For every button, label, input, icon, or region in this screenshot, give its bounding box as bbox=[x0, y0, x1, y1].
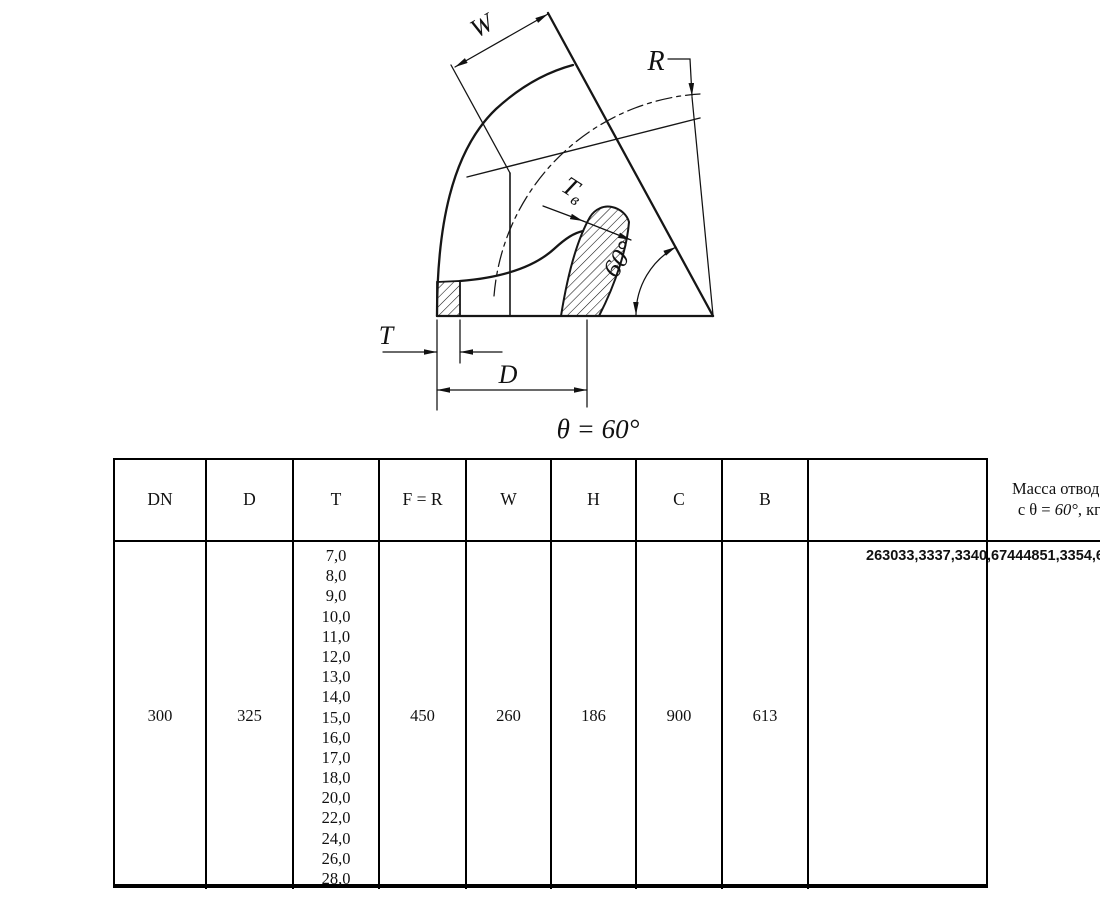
col-header-fr: F = R bbox=[380, 460, 467, 542]
value-h: 186 bbox=[552, 542, 637, 889]
list-item: 18,0 bbox=[322, 768, 351, 788]
list-item: 48 bbox=[1023, 546, 1039, 566]
label-w: W bbox=[465, 7, 500, 44]
list-item: 10,0 bbox=[322, 607, 351, 627]
list-item: 13,0 bbox=[322, 667, 351, 687]
list-item: 11,0 bbox=[322, 627, 350, 647]
label-t: T bbox=[379, 321, 395, 350]
list-item: 22,0 bbox=[322, 808, 351, 828]
list-item: 28,0 bbox=[322, 869, 351, 889]
list-item: 44 bbox=[1007, 546, 1023, 566]
col-header-t: T bbox=[294, 460, 380, 542]
outer-arc bbox=[437, 65, 573, 316]
mass-header-line2: с θ = 60°, кг bbox=[1018, 500, 1100, 521]
col-header-h: H bbox=[552, 460, 637, 542]
col-header-w: W bbox=[467, 460, 552, 542]
wall-section-left bbox=[437, 281, 460, 316]
list-item: 54,67 bbox=[1076, 546, 1100, 566]
catalog-page: W R Тв 60° T D θ = 60° DN D T F = R W H … bbox=[0, 0, 1100, 900]
list-item: 33,33 bbox=[898, 546, 934, 566]
mass-header-line1: Масса отвода bbox=[1012, 479, 1100, 500]
value-w: 260 bbox=[467, 542, 552, 889]
list-item: 26 bbox=[866, 546, 882, 566]
value-mass-list: 263033,3337,3340,67444851,3354,675861,33… bbox=[809, 542, 1100, 889]
value-t-list: 7,08,09,010,011,012,013,014,015,016,017,… bbox=[294, 542, 380, 889]
bore-curve bbox=[460, 231, 583, 281]
col-header-d: D bbox=[207, 460, 294, 542]
list-item: 17,0 bbox=[322, 748, 351, 768]
label-r: R bbox=[646, 46, 664, 77]
col-header-b: B bbox=[723, 460, 809, 542]
tv-leader-1 bbox=[543, 206, 583, 221]
col-header-c: C bbox=[637, 460, 723, 542]
list-item: 15,0 bbox=[322, 708, 351, 728]
r-leader bbox=[668, 59, 692, 96]
col-header-dn: DN bbox=[115, 460, 207, 542]
list-item: 9,0 bbox=[326, 586, 347, 606]
value-b: 613 bbox=[723, 542, 809, 889]
list-item: 24,0 bbox=[322, 829, 351, 849]
value-c: 900 bbox=[637, 542, 723, 889]
list-item: 26,0 bbox=[322, 849, 351, 869]
list-item: 8,0 bbox=[326, 566, 347, 586]
list-item: 37,33 bbox=[935, 546, 971, 566]
list-item: 40,67 bbox=[971, 546, 1007, 566]
w-extension-line bbox=[451, 65, 510, 173]
list-item: 16,0 bbox=[322, 728, 351, 748]
label-tv: Тв bbox=[555, 171, 591, 210]
value-fr: 450 bbox=[380, 542, 467, 889]
list-item: 20,0 bbox=[322, 788, 351, 808]
list-item: 51,33 bbox=[1039, 546, 1075, 566]
angle-arc-60 bbox=[636, 247, 676, 315]
value-d: 325 bbox=[207, 542, 294, 889]
label-d: D bbox=[498, 360, 518, 389]
elbow-drawing: W R Тв 60° T D θ = 60° bbox=[0, 0, 1100, 455]
list-item: 30 bbox=[882, 546, 898, 566]
col-header-mass: Масса отвода с θ = 60°, кг bbox=[809, 460, 1100, 542]
spec-table: DN D T F = R W H C B Масса отвода с θ = … bbox=[113, 458, 988, 888]
tangent-line bbox=[467, 118, 700, 177]
list-item: 14,0 bbox=[322, 687, 351, 707]
list-item: 12,0 bbox=[322, 647, 351, 667]
value-dn: 300 bbox=[115, 542, 207, 889]
label-theta-note: θ = 60° bbox=[557, 414, 640, 444]
list-item: 7,0 bbox=[326, 546, 347, 566]
